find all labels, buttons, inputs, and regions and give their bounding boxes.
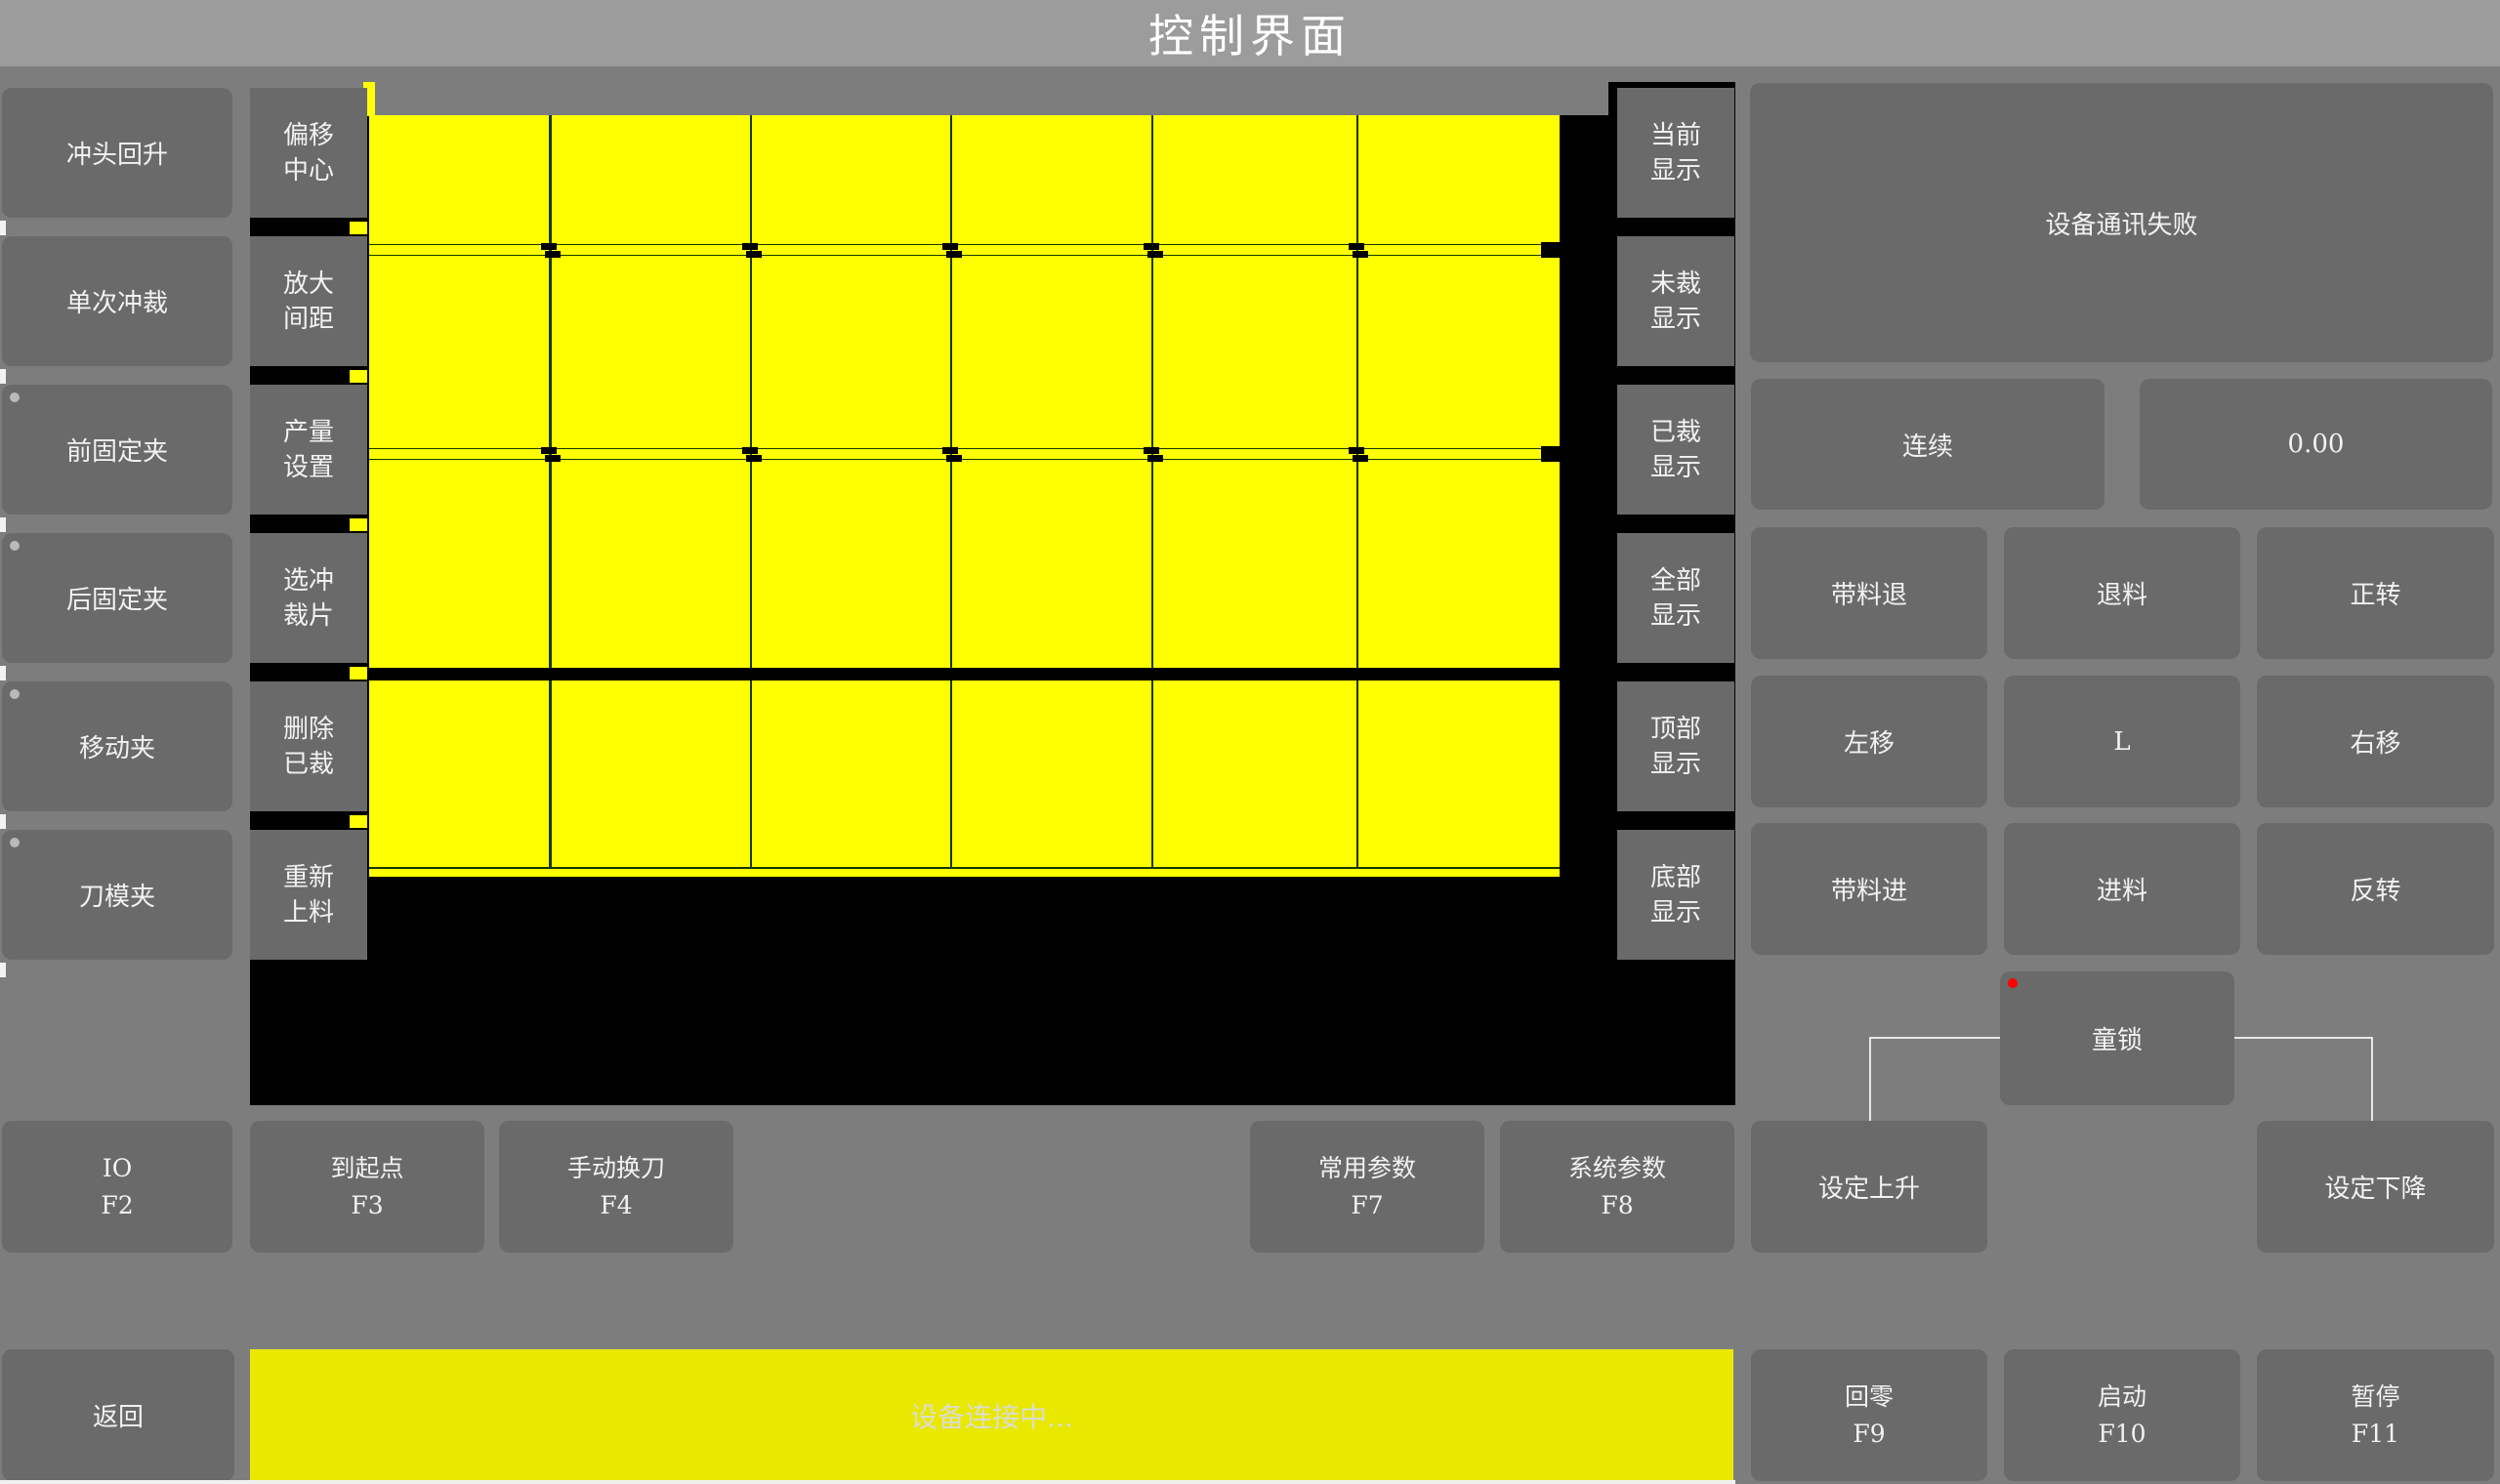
grid-mark <box>545 455 561 462</box>
button-label: 左移 <box>1844 723 1895 760</box>
button-label: 设定下降 <box>2324 1169 2426 1205</box>
button-label: L <box>2113 727 2130 757</box>
button-label: 暂停 <box>2351 1379 2399 1416</box>
connection-status-bar: 设备连接中... <box>250 1349 1733 1481</box>
button-label: 未裁 显示 <box>1650 267 1701 337</box>
grid-mark <box>1349 243 1364 250</box>
status-dot <box>10 392 20 402</box>
material-gap-mark <box>350 370 367 383</box>
fkey-label: F2 <box>101 1187 133 1224</box>
start-f10-button[interactable]: 启动F10 <box>2004 1349 2240 1481</box>
show-all-button[interactable]: 全部 显示 <box>1617 533 1734 663</box>
button-label: 偏移 中心 <box>283 118 334 188</box>
fkey-label: F4 <box>600 1187 632 1224</box>
material-gap-mark <box>350 518 367 531</box>
io-f2-button[interactable]: IOF2 <box>2 1121 232 1253</box>
button-label: 刀模夹 <box>79 877 155 913</box>
grid-mark <box>1353 251 1368 258</box>
grid-mark <box>942 447 958 454</box>
button-label: 冲头回升 <box>66 135 168 171</box>
grid-mark <box>1144 243 1159 250</box>
child-lock-button[interactable]: 童锁 <box>2000 971 2234 1105</box>
alarm-dot <box>2008 978 2018 988</box>
control-screen: 控制界面 冲头回升 单次冲裁 前固定夹 后固定夹 移动夹 刀模夹 偏移 中心 放… <box>0 0 2500 1484</box>
status-dot <box>10 541 20 551</box>
grid-mark <box>946 455 962 462</box>
front-clamp-button[interactable]: 前固定夹 <box>2 385 232 515</box>
grid-mark <box>1147 455 1163 462</box>
button-label: 选冲 裁片 <box>283 563 334 634</box>
enlarge-spacing-button[interactable]: 放大 间距 <box>250 236 367 366</box>
child-lock-bracket-left <box>1869 1037 1871 1123</box>
grid-mark <box>1147 251 1163 258</box>
grid-mark <box>1541 242 1560 258</box>
show-cut-button[interactable]: 已裁 显示 <box>1617 385 1734 515</box>
edge-tick <box>0 814 6 829</box>
button-label: 当前 显示 <box>1650 118 1701 188</box>
status-dot <box>10 838 20 847</box>
value-text: 0.00 <box>2288 430 2345 459</box>
grid-mark <box>742 447 758 454</box>
grid-mark <box>549 115 552 869</box>
button-label: 正转 <box>2350 575 2400 611</box>
button-label: 返回 <box>93 1397 144 1433</box>
grid-mark <box>1356 115 1358 869</box>
tape-feed-button[interactable]: 带料进 <box>1751 823 1987 955</box>
grid-mark <box>541 243 557 250</box>
material-gap-mark <box>350 667 367 680</box>
single-punch-button[interactable]: 单次冲裁 <box>2 236 232 366</box>
button-label: 已裁 显示 <box>1650 415 1701 485</box>
button-label: 放大 间距 <box>283 267 334 337</box>
show-top-button[interactable]: 顶部 显示 <box>1617 681 1734 811</box>
fkey-label: F10 <box>2098 1416 2146 1453</box>
grid-mark <box>1151 115 1153 869</box>
mode-continuous-button[interactable]: 连续 <box>1751 379 2104 510</box>
pause-f11-button[interactable]: 暂停F11 <box>2257 1349 2494 1481</box>
button-label: 系统参数 <box>1568 1150 1666 1187</box>
reverse-rotate-button[interactable]: 反转 <box>2257 823 2494 955</box>
material-gap-mark <box>350 222 367 234</box>
button-label: 手动换刀 <box>567 1150 665 1187</box>
grid-mark <box>946 251 962 258</box>
grid-mark <box>750 115 752 869</box>
button-label: 回零 <box>1845 1379 1894 1416</box>
title-bar: 控制界面 <box>0 0 2500 66</box>
edge-tick <box>0 369 6 384</box>
button-label: 童锁 <box>2092 1020 2143 1056</box>
system-params-f8-button[interactable]: 系统参数F8 <box>1500 1121 1734 1253</box>
fkey-label: F11 <box>2352 1416 2399 1453</box>
unload-button[interactable]: 退料 <box>2004 527 2240 659</box>
delete-cut-button[interactable]: 删除 已裁 <box>250 681 367 811</box>
rear-clamp-button[interactable]: 后固定夹 <box>2 533 232 663</box>
button-label: 反转 <box>2350 871 2400 907</box>
button-label: 连续 <box>1902 427 1953 463</box>
forward-rotate-button[interactable]: 正转 <box>2257 527 2494 659</box>
grid-mark <box>1353 455 1368 462</box>
show-current-button[interactable]: 当前 显示 <box>1617 88 1734 218</box>
status-dot <box>10 689 20 699</box>
edge-tick <box>0 666 6 680</box>
device-status-panel: 设备通讯失败 <box>1750 83 2493 362</box>
move-left-button[interactable]: 左移 <box>1751 676 1987 807</box>
value-display[interactable]: 0.00 <box>2140 379 2492 510</box>
l-button[interactable]: L <box>2004 676 2240 807</box>
button-label: 前固定夹 <box>66 432 168 468</box>
grid-mark <box>1541 446 1560 462</box>
button-label: 底部 显示 <box>1650 860 1701 930</box>
bottom-edge-line <box>0 1480 1735 1484</box>
fkey-label: F3 <box>351 1187 383 1224</box>
select-piece-button[interactable]: 选冲 裁片 <box>250 533 367 663</box>
child-lock-bracket-right <box>2371 1037 2373 1123</box>
grid-mark <box>545 251 561 258</box>
connection-status-text: 设备连接中... <box>910 1396 1073 1435</box>
grid-mark <box>742 243 758 250</box>
button-label: 进料 <box>2097 871 2147 907</box>
edge-tick <box>0 221 6 235</box>
grid-mark <box>369 668 1560 680</box>
feed-button[interactable]: 进料 <box>2004 823 2240 955</box>
reload-material-button[interactable]: 重新 上料 <box>250 830 367 960</box>
material-gap-mark <box>350 815 367 828</box>
grid-mark <box>1144 447 1159 454</box>
fkey-label: F7 <box>1351 1187 1383 1224</box>
button-label: 退料 <box>2097 575 2147 611</box>
button-label: 重新 上料 <box>283 860 334 930</box>
tape-back-button[interactable]: 带料退 <box>1751 527 1987 659</box>
edge-tick <box>0 963 6 977</box>
offset-center-button[interactable]: 偏移 中心 <box>250 88 367 218</box>
punch-raise-button[interactable]: 冲头回升 <box>2 88 232 218</box>
to-origin-f3-button[interactable]: 到起点F3 <box>250 1121 484 1253</box>
button-label: 移动夹 <box>79 728 155 764</box>
show-uncut-button[interactable]: 未裁 显示 <box>1617 236 1734 366</box>
fkey-label: F8 <box>1601 1187 1633 1224</box>
device-status-message: 设备通讯失败 <box>2045 205 2197 241</box>
button-label: 后固定夹 <box>66 580 168 616</box>
button-label: 设定上升 <box>1818 1169 1920 1205</box>
button-label: 常用参数 <box>1318 1150 1416 1187</box>
button-label: 右移 <box>2350 723 2400 760</box>
fkey-label: F9 <box>1853 1416 1885 1453</box>
manual-tool-change-f4-button[interactable]: 手动换刀F4 <box>499 1121 733 1253</box>
grid-mark <box>746 251 762 258</box>
common-params-f7-button[interactable]: 常用参数F7 <box>1250 1121 1484 1253</box>
back-button[interactable]: 返回 <box>2 1349 234 1481</box>
button-label: 产量 设置 <box>283 415 334 485</box>
move-right-button[interactable]: 右移 <box>2257 676 2494 807</box>
button-label: 启动 <box>2098 1379 2146 1416</box>
set-rise-button[interactable]: 设定上升 <box>1751 1121 1987 1253</box>
button-label: 全部 显示 <box>1650 563 1701 634</box>
edge-tick <box>0 517 6 532</box>
button-label: 单次冲裁 <box>66 283 168 319</box>
home-f9-button[interactable]: 回零F9 <box>1751 1349 1987 1481</box>
output-setting-button[interactable]: 产量 设置 <box>250 385 367 515</box>
grid-mark <box>950 115 952 869</box>
show-bottom-button[interactable]: 底部 显示 <box>1617 830 1734 960</box>
button-label: 带料进 <box>1831 871 1907 907</box>
die-clamp-button[interactable]: 刀模夹 <box>2 830 232 960</box>
material-preview[interactable] <box>369 115 1560 877</box>
button-label: 删除 已裁 <box>283 712 334 782</box>
grid-mark <box>1349 447 1364 454</box>
grid-mark <box>369 867 1560 869</box>
moving-clamp-button[interactable]: 移动夹 <box>2 681 232 811</box>
grid-mark <box>541 447 557 454</box>
button-label: 到起点 <box>330 1150 403 1187</box>
page-title: 控制界面 <box>1148 1 1352 65</box>
button-label: 顶部 显示 <box>1650 712 1701 782</box>
button-label: 带料退 <box>1831 575 1907 611</box>
set-descend-button[interactable]: 设定下降 <box>2257 1121 2494 1253</box>
grid-mark <box>942 243 958 250</box>
grid-mark <box>746 455 762 462</box>
button-label: IO <box>103 1150 132 1187</box>
